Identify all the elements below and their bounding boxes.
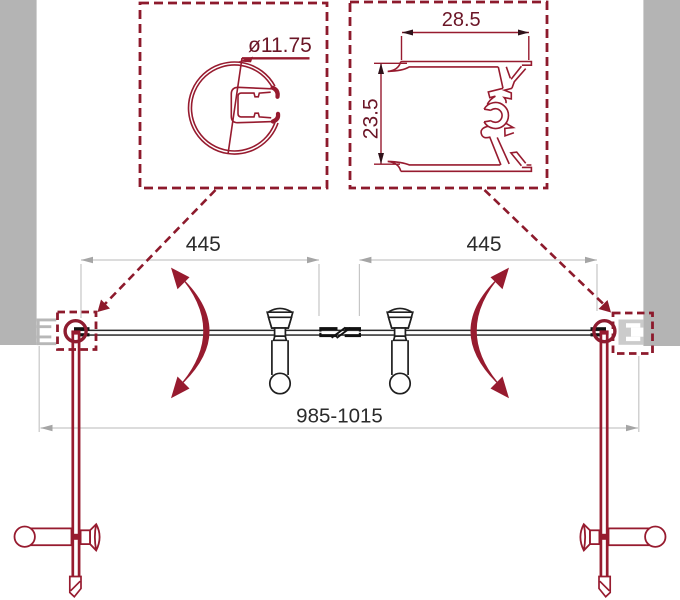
svg-text:23.5: 23.5 xyxy=(360,98,383,139)
svg-text:445: 445 xyxy=(466,233,501,256)
svg-text:28.5: 28.5 xyxy=(442,9,481,31)
svg-text:445: 445 xyxy=(186,233,221,256)
svg-text:985-1015: 985-1015 xyxy=(296,405,383,428)
svg-text:ø11.75: ø11.75 xyxy=(248,34,312,57)
